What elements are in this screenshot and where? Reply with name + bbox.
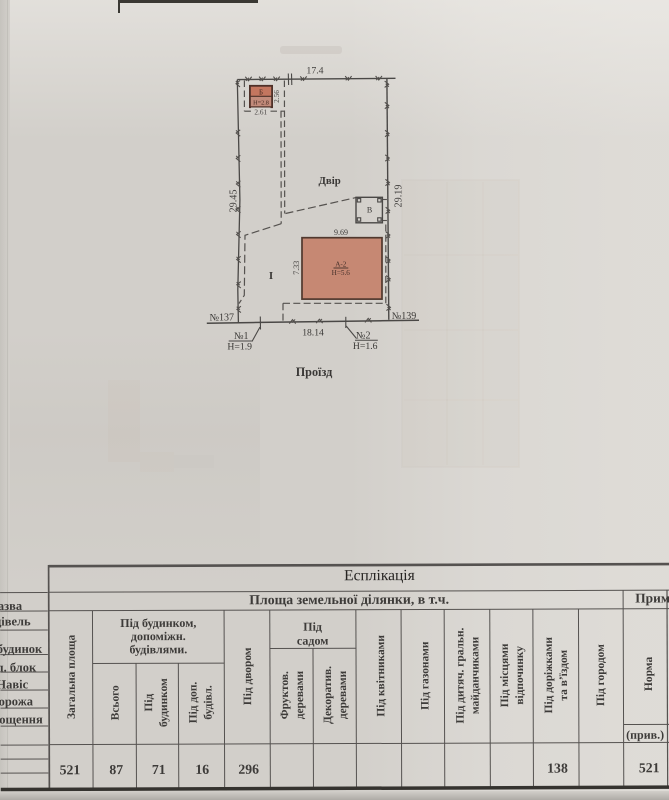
svg-text:Площа земельної ділянки, в т.ч: Площа земельної ділянки, в т.ч. — [249, 592, 449, 608]
svg-text:Під будинком,: Під будинком, — [120, 616, 196, 630]
svg-text:Під: Під — [143, 694, 155, 712]
svg-text:будівл.: будівл. — [203, 685, 215, 720]
svg-text:296: 296 — [238, 762, 259, 777]
svg-text:Під двором: Під двором — [242, 647, 254, 705]
svg-text:Прим: Прим — [635, 590, 669, 605]
svg-text:Огорожа: Огорожа — [0, 694, 34, 708]
svg-text:Есплікація: Есплікація — [344, 567, 415, 584]
svg-text:деревами: деревами — [294, 670, 306, 719]
svg-text:Під: Під — [303, 620, 322, 634]
svg-text:садом: садом — [297, 634, 329, 648]
svg-text:Норма: Норма — [643, 657, 655, 691]
svg-text:521: 521 — [639, 760, 660, 775]
svg-text:71: 71 — [152, 762, 166, 777]
svg-text:Навіс: Навіс — [0, 677, 29, 691]
svg-text:Фруктов.: Фруктов. — [279, 671, 291, 719]
svg-text:Під квітниками: Під квітниками — [375, 635, 387, 717]
svg-text:Під доріжками: Під доріжками — [543, 637, 555, 714]
svg-text:(прив.): (прив.) — [626, 728, 664, 742]
svg-text:п. блок: п. блок — [0, 660, 37, 674]
svg-text:Назва: Назва — [0, 599, 23, 613]
svg-text:Під газонами: Під газонами — [419, 641, 431, 710]
svg-text:будівлями.: будівлями. — [129, 642, 187, 656]
svg-text:521: 521 — [60, 762, 81, 777]
svg-text:Замощення: Замощення — [0, 712, 43, 726]
svg-text:Під городом: Під городом — [595, 644, 607, 706]
svg-text:майданчиками: майданчиками — [469, 636, 481, 714]
svg-text:деревами: деревами — [337, 670, 349, 719]
svg-text:Під місцями: Під місцями — [499, 643, 511, 707]
svg-text:Всього: Всього — [110, 685, 122, 720]
svg-text:Під доп.: Під доп. — [188, 682, 200, 724]
svg-text:будівель: будівель — [0, 614, 31, 628]
svg-text:відпочинку: відпочинку — [514, 646, 526, 705]
svg-text:Загальна площа: Загальна площа — [66, 635, 78, 720]
svg-text:Під дитяч. гральн.: Під дитяч. гральн. — [454, 627, 466, 723]
svg-text:будинком: будинком — [158, 678, 170, 727]
svg-text:допоміжн.: допоміжн. — [131, 629, 186, 643]
svg-text:16: 16 — [195, 762, 209, 777]
svg-text:87: 87 — [109, 762, 123, 777]
svg-text:Декоратив.: Декоратив. — [322, 666, 334, 724]
svg-text:та в’їздом: та в’їздом — [558, 650, 570, 701]
svg-text:138: 138 — [547, 761, 568, 776]
svg-text:будинок: будинок — [0, 642, 43, 656]
